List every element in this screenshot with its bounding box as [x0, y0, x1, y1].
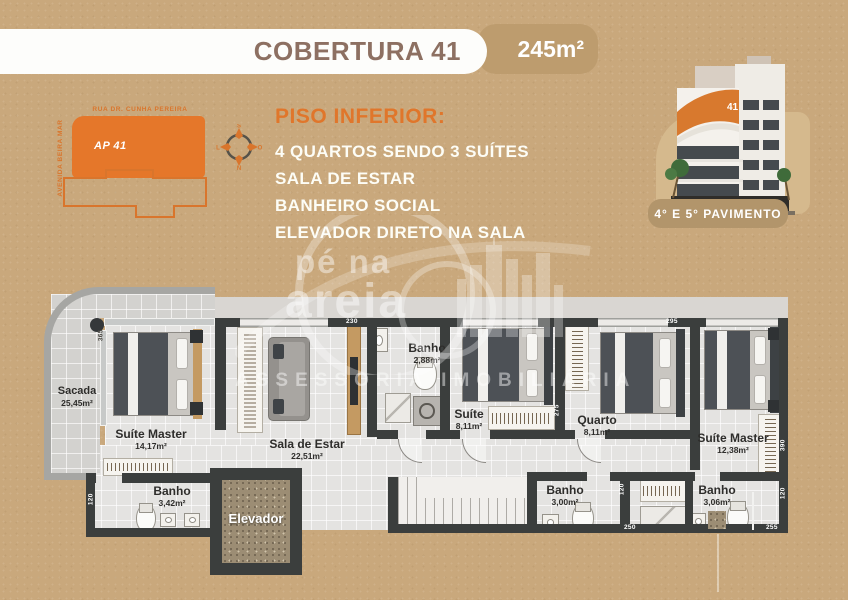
balcony-sliding-door	[104, 318, 215, 326]
wall-banho342-bottom	[86, 528, 213, 537]
dimension-label: 120	[89, 493, 96, 505]
dimension-label: 250	[624, 525, 636, 532]
wall-corridor	[605, 430, 690, 439]
feature-item: BANHEIRO SOCIAL	[275, 192, 585, 219]
bed-headboard	[544, 325, 553, 405]
bed-duvet	[463, 329, 519, 401]
bed-duvet	[601, 333, 653, 413]
street-label-top: RUA DR. CUNHA PEREIRA	[70, 106, 210, 113]
throw-pillow	[273, 399, 284, 414]
feature-item: SALA DE ESTAR	[275, 165, 585, 192]
room-label-banho-306: Banho	[698, 484, 735, 497]
stair-treads	[398, 477, 424, 524]
area-badge-text: 245m²	[518, 36, 584, 63]
wall-hall-top	[630, 472, 695, 481]
shower	[385, 393, 411, 423]
tv	[350, 357, 358, 405]
bed-pillow	[176, 338, 188, 369]
pavement-badge-text: 4° E 5° PAVIMENTO	[654, 207, 781, 221]
balcony-glass-side	[100, 330, 107, 426]
dimension-label: 120	[620, 483, 627, 495]
room-label-banho-300: Banho	[546, 484, 583, 497]
shower-glass	[752, 492, 754, 530]
bed-pillow	[659, 378, 671, 408]
window	[240, 318, 328, 327]
nightstand	[768, 400, 779, 412]
compass-right-letter: O	[258, 146, 262, 152]
wall-bottom-right	[527, 524, 788, 533]
title-bar: COBERTURA 41	[0, 29, 487, 74]
dimension-label: 390	[781, 439, 788, 451]
room-label-quarto: Quarto	[577, 414, 616, 427]
room-label-sala: Sala de Estar	[269, 438, 344, 451]
bed-suite-master-2	[704, 330, 772, 410]
floor-heading: PISO INFERIOR:	[275, 105, 585, 129]
nightstand	[190, 402, 203, 415]
bed-pillow	[754, 375, 766, 405]
wall-sala-banho	[367, 318, 377, 437]
dimension-label: 295	[666, 319, 678, 326]
upper-ledge	[215, 297, 788, 318]
room-label-banho-social: Banho	[408, 342, 445, 355]
map-unit-label: AP 41	[94, 140, 127, 152]
bathroom-sink	[184, 513, 200, 527]
closet-quarto	[565, 325, 589, 391]
hall-closet	[640, 480, 686, 502]
wall-banho342-top	[122, 473, 213, 483]
floor-plan: Sacada 25,45m² Suíte Master 14,17m² Sala…	[38, 282, 795, 578]
dimension-label: 275	[555, 404, 562, 416]
room-label-banho-342: Banho	[153, 485, 190, 498]
bed-pillow	[526, 333, 538, 360]
dimension-label: 255	[766, 525, 778, 532]
map-lot-outline	[58, 166, 213, 220]
wall-corridor	[490, 430, 575, 439]
compass-top-letter: S	[237, 124, 241, 130]
bed-pillow	[659, 338, 671, 368]
window	[706, 318, 778, 327]
room-label-suite-master-1: Suíte Master	[115, 428, 186, 441]
nightstand	[190, 330, 203, 343]
feature-item: ELEVADOR DIRETO NA SALA	[275, 219, 585, 246]
floorplan-brochure: 245m² COBERTURA 41 RUA DR. CUNHA PEREIRA…	[0, 0, 848, 600]
wall-suitemaster1-sala	[215, 318, 226, 430]
bed-quarto	[600, 332, 678, 414]
bed-sheet	[615, 333, 625, 413]
window	[463, 318, 538, 327]
feature-list: PISO INFERIOR: 4 QUARTOS SENDO 3 SUÍTES …	[275, 105, 585, 246]
wall-corridor	[426, 430, 460, 439]
window	[598, 318, 668, 327]
pavement-badge: 4° E 5° PAVIMENTO	[648, 199, 788, 228]
building-number: 41	[727, 102, 739, 113]
balcony-railing-end	[44, 473, 89, 480]
compass-left-letter: L	[216, 146, 220, 152]
dimension-label: 120	[781, 487, 788, 499]
wall-banho342-top	[86, 473, 96, 483]
closet-suite	[488, 406, 555, 430]
bed-pillow	[176, 379, 188, 410]
sofa	[268, 337, 310, 421]
wall-banho306-top	[720, 472, 788, 481]
throw-pillow	[273, 344, 284, 359]
bed-headboard	[676, 329, 685, 417]
washer	[413, 396, 441, 426]
area-badge: 245m²	[478, 24, 598, 74]
room-label-elevador: Elevador	[229, 512, 284, 526]
bed-sheet	[717, 331, 727, 409]
bed-pillow	[754, 336, 766, 366]
room-label-suite: Suíte	[454, 408, 483, 421]
granite-counter	[708, 511, 726, 529]
wall-suite-quarto	[555, 318, 565, 437]
room-label-suite-master-2: Suíte Master	[697, 432, 768, 445]
wall-banho300-top	[527, 472, 587, 481]
bed-suite-master-1	[113, 332, 195, 416]
room-label-sacada: Sacada	[58, 386, 97, 398]
sideboard-sala	[237, 327, 263, 433]
wall-banho-suite	[440, 318, 450, 437]
bed-suite	[462, 328, 546, 402]
bathroom-sink	[160, 513, 176, 527]
feature-item: 4 QUARTOS SENDO 3 SUÍTES	[275, 138, 585, 165]
dimension-label: 230	[346, 319, 358, 326]
bed-sheet	[128, 333, 138, 415]
compass-icon: S O N L	[216, 124, 262, 170]
bed-sheet	[478, 329, 488, 401]
dimension-label: 365	[99, 329, 106, 341]
page-title: COBERTURA 41	[254, 36, 461, 67]
bed-duvet	[114, 333, 168, 415]
nightstand	[768, 328, 779, 340]
watermark-logo-line1: pé na	[295, 243, 391, 281]
wall-right	[779, 318, 788, 533]
stairs-wall-bottom	[388, 524, 537, 533]
building-render: 41	[655, 48, 805, 216]
compass-bottom-letter: N	[237, 166, 241, 170]
bed-pillow	[526, 369, 538, 396]
bed-duvet	[705, 331, 750, 409]
wall-corridor	[377, 430, 398, 439]
